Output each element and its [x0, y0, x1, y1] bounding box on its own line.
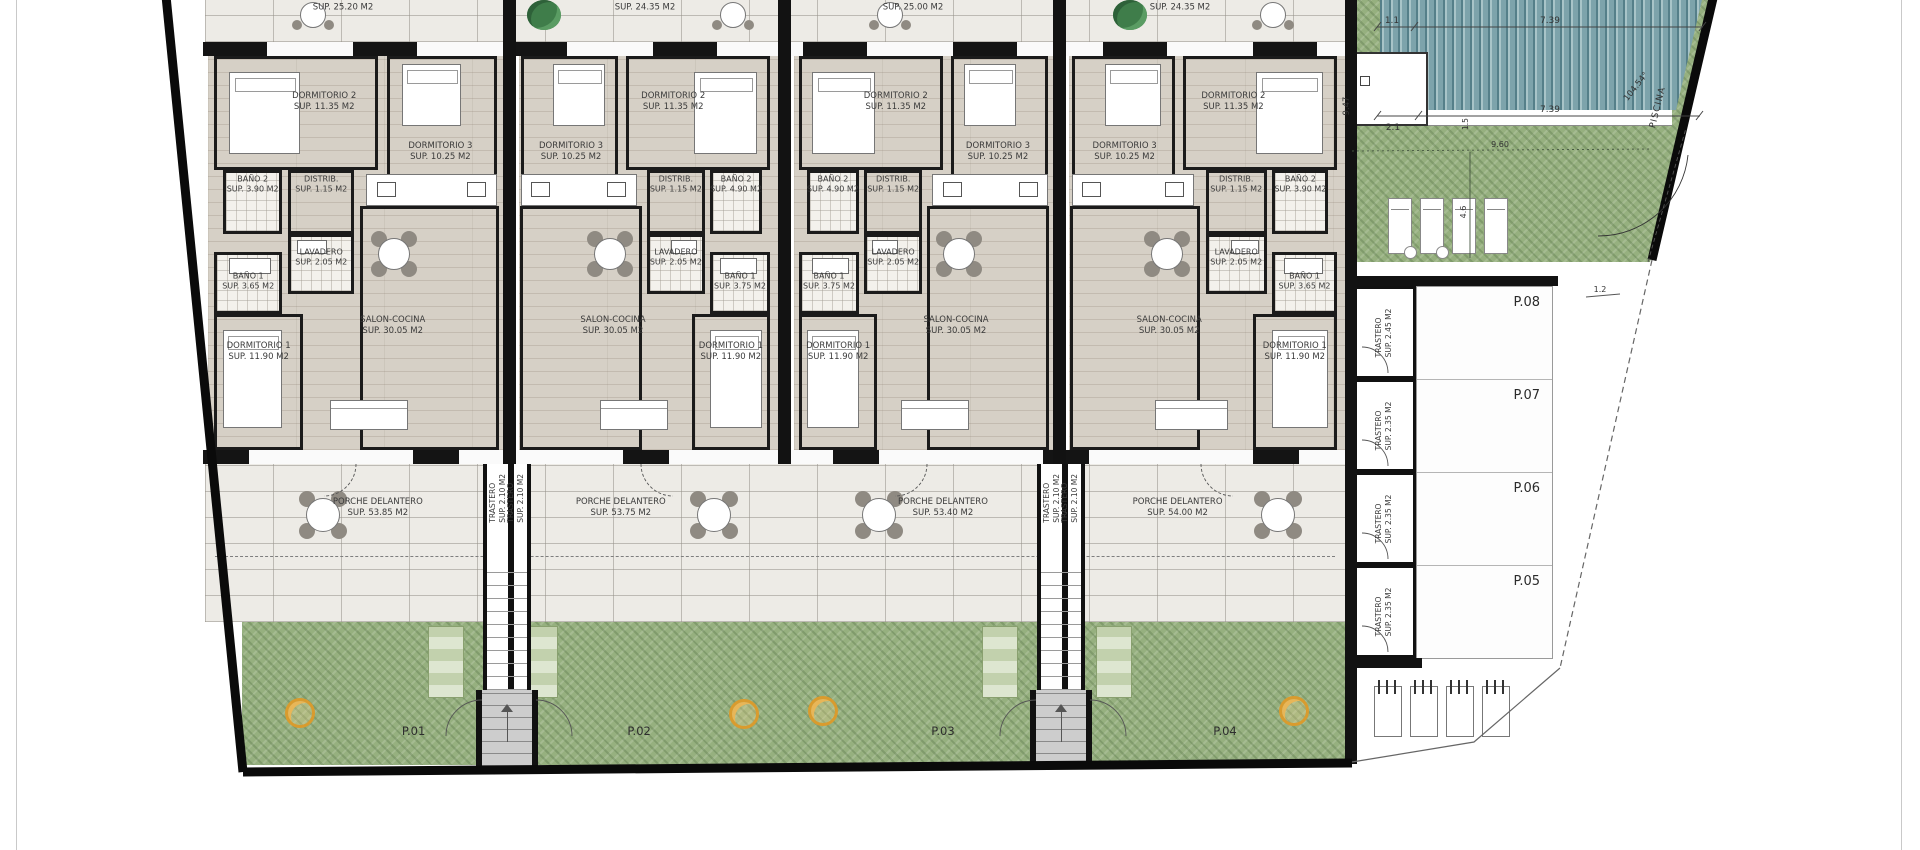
porch-sup: SUP. 54.00 M2: [1133, 508, 1223, 519]
plot-label: P.04: [1213, 724, 1236, 738]
room-sup: SUP. 30.05 M2: [1137, 326, 1202, 337]
trastero-label: TRASTEROSUP. 2.10 M2: [506, 474, 526, 523]
room-label: SALON-COCINASUP. 30.05 M2: [1137, 315, 1202, 337]
trastero-name: TRASTERO: [1374, 308, 1384, 357]
room-label: BAÑO 1SUP. 3.75 M2: [714, 272, 766, 293]
parking-label: P.08: [1514, 295, 1541, 310]
room-sup: SUP. 10.25 M2: [539, 152, 603, 163]
trastero-name: TRASTERO: [1060, 474, 1070, 523]
porch-table: [697, 498, 731, 532]
trastero-name: TRASTERO: [488, 474, 498, 523]
dim-text: 1.2: [1594, 285, 1607, 294]
room-label: DORMITORIO 2SUP. 11.35 M2: [1201, 91, 1265, 113]
unit-1: DORMITORIO 2SUP. 11.35 M2 DORMITORIO 3SU…: [205, 0, 503, 765]
bike-space: [1374, 686, 1402, 737]
room-label: DORMITORIO 1SUP. 11.90 M2: [1263, 341, 1327, 363]
room-name: DORMITORIO 1: [1263, 341, 1327, 352]
page-edge-right: [1901, 0, 1902, 850]
trastero-sup: SUP. 2.35 M2: [1384, 494, 1394, 543]
room-label: BAÑO 1SUP. 3.65 M2: [222, 272, 274, 293]
bed: [229, 72, 301, 154]
room-name: DORMITORIO 3: [408, 141, 472, 152]
dining-table: [943, 238, 975, 270]
room-sup: SUP. 3.90 M2: [227, 185, 279, 195]
room-label: BAÑO 2SUP. 4.90 M2: [710, 175, 762, 196]
room-name: BAÑO 1: [1279, 272, 1331, 282]
unit-3: DORMITORIO 2SUP. 11.35 M2 DORMITORIO 3SU…: [791, 0, 1053, 765]
bike-space: [1410, 686, 1438, 737]
room-sup: SUP. 4.90 M2: [710, 185, 762, 195]
room-label: LAVADEROSUP. 2.05 M2: [295, 248, 347, 269]
plot-label: P.01: [402, 724, 425, 738]
sofa: [1155, 400, 1228, 430]
bed: [1105, 64, 1161, 126]
room-sup: SUP. 1.15 M2: [867, 185, 919, 195]
room-label: DORMITORIO 3SUP. 10.25 M2: [1093, 141, 1157, 163]
room-sup: SUP. 2.05 M2: [650, 258, 702, 268]
room-name: LAVADERO: [295, 248, 347, 258]
room-name: LAVADERO: [867, 248, 919, 258]
room-label: SALON-COCINASUP. 30.05 M2: [923, 315, 988, 337]
party-wall: [1053, 0, 1066, 464]
stair-treads: [507, 560, 527, 690]
porch-name: PORCHE DELANTERO: [333, 497, 423, 508]
room-sup: SUP. 11.35 M2: [292, 102, 356, 113]
room-sup: SUP. 11.90 M2: [227, 352, 291, 363]
kitchen-counter: [932, 174, 1047, 206]
side-table: [1436, 246, 1449, 259]
porch-label: PORCHE DELANTEROSUP. 53.75 M2: [576, 497, 666, 519]
floorplan-page: { "colors":{"wood":"#d6d0c6","tile":"#ed…: [0, 0, 1920, 850]
room-sup: SUP. 1.15 M2: [295, 185, 347, 195]
dining-table: [594, 238, 626, 270]
room-label: LAVADEROSUP. 2.05 M2: [1210, 248, 1262, 269]
room-name: DORMITORIO 3: [539, 141, 603, 152]
sun-lounger: [1484, 198, 1508, 254]
entry-steps-1: [476, 690, 538, 766]
room-sup: SUP. 3.65 M2: [1279, 282, 1331, 292]
room-name: BAÑO 2: [1274, 175, 1326, 185]
bike-space: [1482, 686, 1510, 737]
room-sup: SUP. 10.25 M2: [966, 152, 1030, 163]
bed: [1256, 72, 1323, 154]
trastero-sup: SUP. 2.10 M2: [1070, 474, 1080, 523]
room-name: DORMITORIO 1: [699, 341, 763, 352]
room-sup: SUP. 30.05 M2: [923, 326, 988, 337]
direction-arrow-icon: [501, 698, 513, 712]
direction-arrow-icon: [1055, 698, 1067, 712]
parking-space: P.08: [1417, 287, 1552, 380]
bike-space: [1446, 686, 1474, 737]
room-label: DORMITORIO 1SUP. 11.90 M2: [227, 341, 291, 363]
room-sup: SUP. 4.90 M2: [807, 185, 859, 195]
room-label: BAÑO 1SUP. 3.75 M2: [803, 272, 855, 293]
trastero-label: TRASTEROSUP. 2.45 M2: [1374, 308, 1394, 357]
sofa: [330, 400, 407, 430]
room-label: SALON-COCINASUP. 30.05 M2: [360, 315, 425, 337]
trastero-room: TRASTEROSUP. 2.45 M2: [1352, 286, 1416, 379]
room-label: BAÑO 2SUP. 3.90 M2: [227, 175, 279, 196]
room-sup: SUP. 3.65 M2: [222, 282, 274, 292]
room-label: BAÑO 2SUP. 3.90 M2: [1274, 175, 1326, 196]
tree-icon: [285, 698, 315, 728]
stairwell-1: TRASTEROSUP. 2.10 M2 TRASTEROSUP. 2.10 M…: [483, 464, 531, 690]
bed: [964, 64, 1016, 126]
room-name: BAÑO 1: [803, 272, 855, 282]
sofa: [901, 400, 969, 430]
room-sup: SUP. 11.90 M2: [699, 352, 763, 363]
room-name: DORMITORIO 2: [641, 91, 705, 102]
trastero-label: TRASTEROSUP. 2.10 M2: [1060, 474, 1080, 523]
room-label: LAVADEROSUP. 2.05 M2: [867, 248, 919, 269]
party-wall: [503, 0, 516, 464]
front-facade-wall: [203, 450, 1347, 464]
room-sup: SUP. 11.90 M2: [1263, 352, 1327, 363]
parking-label: P.07: [1514, 388, 1541, 403]
side-table: [1404, 246, 1417, 259]
room-label: DORMITORIO 2SUP. 11.35 M2: [864, 91, 928, 113]
room-name: DISTRIB.: [867, 175, 919, 185]
porch-sup: SUP. 53.40 M2: [898, 508, 988, 519]
room-name: BAÑO 1: [222, 272, 274, 282]
patio-fixture: [1360, 76, 1370, 86]
parking-label: P.06: [1514, 481, 1541, 496]
room-label: DISTRIB.SUP. 1.15 M2: [867, 175, 919, 196]
room-label: DORMITORIO 3SUP. 10.25 M2: [539, 141, 603, 163]
room-label: DISTRIB.SUP. 1.15 M2: [650, 175, 702, 196]
porch-label: PORCHE DELANTEROSUP. 53.85 M2: [333, 497, 423, 519]
trastero-sup: SUP. 2.45 M2: [1384, 308, 1394, 357]
stair-treads: [1041, 560, 1061, 690]
trastero-sup: SUP. 2.35 M2: [1384, 401, 1394, 450]
side-patio: [1352, 52, 1428, 126]
porch-label: PORCHE DELANTEROSUP. 54.00 M2: [1133, 497, 1223, 519]
direction-arrow-stem: [507, 712, 508, 742]
room-name: DISTRIB.: [650, 175, 702, 185]
stair-treads: [1061, 560, 1081, 690]
stairwell-2: TRASTEROSUP. 2.10 M2 TRASTEROSUP. 2.10 M…: [1037, 464, 1085, 690]
parking-space: P.07: [1417, 380, 1552, 473]
trastero-name: TRASTERO: [1042, 474, 1052, 523]
trastero-room: TRASTEROSUP. 2.35 M2: [1352, 379, 1416, 472]
trastero-label: TRASTEROSUP. 2.35 M2: [1374, 401, 1394, 450]
plot-label: P.03: [931, 724, 954, 738]
trastero-label: TRASTEROSUP. 2.35 M2: [1374, 494, 1394, 543]
room-label: DORMITORIO 3SUP. 10.25 M2: [408, 141, 472, 163]
room-label: DISTRIB.SUP. 1.15 M2: [295, 175, 347, 196]
room-sup: SUP. 30.05 M2: [580, 326, 645, 337]
room-label: LAVADEROSUP. 2.05 M2: [650, 248, 702, 269]
tree-icon: [1279, 696, 1309, 726]
unit-4: DORMITORIO 2SUP. 11.35 M2 DORMITORIO 3SU…: [1066, 0, 1345, 765]
trastero-label: TRASTEROSUP. 2.35 M2: [1374, 587, 1394, 636]
room-label: DORMITORIO 1SUP. 11.90 M2: [806, 341, 870, 363]
room-label: DORMITORIO 1SUP. 11.90 M2: [699, 341, 763, 363]
porch-table: [1261, 498, 1295, 532]
room-sup: SUP. 3.75 M2: [714, 282, 766, 292]
porch-label: PORCHE DELANTEROSUP. 53.40 M2: [898, 497, 988, 519]
room-name: DORMITORIO 3: [1093, 141, 1157, 152]
room-name: BAÑO 1: [714, 272, 766, 282]
parcel-dashed-line: [1560, 260, 1652, 668]
room-name: DORMITORIO 1: [227, 341, 291, 352]
room-sup: SUP. 2.05 M2: [867, 258, 919, 268]
trastero-sup: SUP. 2.35 M2: [1384, 587, 1394, 636]
party-wall: [778, 0, 791, 464]
room-name: SALON-COCINA: [360, 315, 425, 326]
porch-name: PORCHE DELANTERO: [898, 497, 988, 508]
direction-arrow-stem: [1061, 712, 1062, 742]
room-sup: SUP. 10.25 M2: [408, 152, 472, 163]
sofa: [600, 400, 668, 430]
parking-space: P.06: [1417, 473, 1552, 566]
trastero-room: TRASTEROSUP. 2.35 M2: [1352, 565, 1416, 658]
room-label: SALON-COCINASUP. 30.05 M2: [580, 315, 645, 337]
room-name: BAÑO 2: [227, 175, 279, 185]
room-label: DORMITORIO 2SUP. 11.35 M2: [641, 91, 705, 113]
room-sup: SUP. 11.35 M2: [1201, 102, 1265, 113]
room-name: DORMITORIO 2: [1201, 91, 1265, 102]
kitchen-counter: [366, 174, 497, 206]
porch-sup: SUP. 53.85 M2: [333, 508, 423, 519]
room-name: BAÑO 2: [710, 175, 762, 185]
right-zone-top-wall: [1352, 276, 1558, 286]
room-sup: SUP. 11.35 M2: [641, 102, 705, 113]
room-name: DORMITORIO 2: [292, 91, 356, 102]
trastero-name: TRASTERO: [1374, 494, 1384, 543]
room-name: SALON-COCINA: [923, 315, 988, 326]
porch-table: [862, 498, 896, 532]
bed: [402, 64, 462, 126]
swimming-pool: [1380, 0, 1702, 110]
page-edge-left: [16, 0, 17, 850]
trastero-name: TRASTERO: [506, 474, 516, 523]
tree-icon: [808, 696, 838, 726]
room-label: DORMITORIO 2SUP. 11.35 M2: [292, 91, 356, 113]
kitchen-counter: [1072, 174, 1195, 206]
small-dim-line: [1586, 294, 1620, 297]
tree-icon: [729, 699, 759, 729]
room-sup: SUP. 3.75 M2: [803, 282, 855, 292]
room-sup: SUP. 3.90 M2: [1274, 185, 1326, 195]
room-name: DORMITORIO 3: [966, 141, 1030, 152]
room-name: DISTRIB.: [1210, 175, 1262, 185]
room-label: DORMITORIO 3SUP. 10.25 M2: [966, 141, 1030, 163]
bed: [553, 64, 605, 126]
plot-label: P.02: [627, 724, 650, 738]
room-name: BAÑO 2: [807, 175, 859, 185]
room-sup: SUP. 11.90 M2: [806, 352, 870, 363]
room-sup: SUP. 1.15 M2: [1210, 185, 1262, 195]
dining-table: [378, 238, 410, 270]
trastero-name: TRASTERO: [1374, 587, 1384, 636]
room-sup: SUP. 2.05 M2: [295, 258, 347, 268]
room-label: BAÑO 2SUP. 4.90 M2: [807, 175, 859, 196]
room-name: SALON-COCINA: [580, 315, 645, 326]
kitchen-counter: [521, 174, 636, 206]
building-right-wall: [1345, 0, 1357, 764]
porch-name: PORCHE DELANTERO: [576, 497, 666, 508]
room-name: LAVADERO: [650, 248, 702, 258]
trastero-room: TRASTEROSUP. 2.35 M2: [1352, 472, 1416, 565]
right-zone-bottom-wall: [1352, 658, 1422, 668]
parking-space: P.05: [1417, 566, 1552, 659]
porch-sup: SUP. 53.75 M2: [576, 508, 666, 519]
room-sup: SUP. 2.05 M2: [1210, 258, 1262, 268]
room-name: DORMITORIO 1: [806, 341, 870, 352]
porch-name: PORCHE DELANTERO: [1133, 497, 1223, 508]
dining-table: [1151, 238, 1183, 270]
trastero-sup: SUP. 2.10 M2: [516, 474, 526, 523]
room-sup: SUP. 10.25 M2: [1093, 152, 1157, 163]
room-sup: SUP. 11.35 M2: [864, 102, 928, 113]
room-name: DISTRIB.: [295, 175, 347, 185]
entry-steps-2: [1030, 690, 1092, 766]
room-name: DORMITORIO 2: [864, 91, 928, 102]
unit-2: DORMITORIO 2SUP. 11.35 M2 DORMITORIO 3SU…: [516, 0, 778, 765]
room-label: BAÑO 1SUP. 3.65 M2: [1279, 272, 1331, 293]
parking-label: P.05: [1514, 574, 1541, 589]
room-label: DISTRIB.SUP. 1.15 M2: [1210, 175, 1262, 196]
parking-column: P.08 P.07 P.06 P.05: [1416, 286, 1553, 659]
room-sup: SUP. 1.15 M2: [650, 185, 702, 195]
stair-treads: [487, 560, 507, 690]
room-sup: SUP. 30.05 M2: [360, 326, 425, 337]
trastero-name: TRASTERO: [1374, 401, 1384, 450]
room-name: SALON-COCINA: [1137, 315, 1202, 326]
sun-lounger: [1452, 198, 1476, 254]
room-name: LAVADERO: [1210, 248, 1262, 258]
